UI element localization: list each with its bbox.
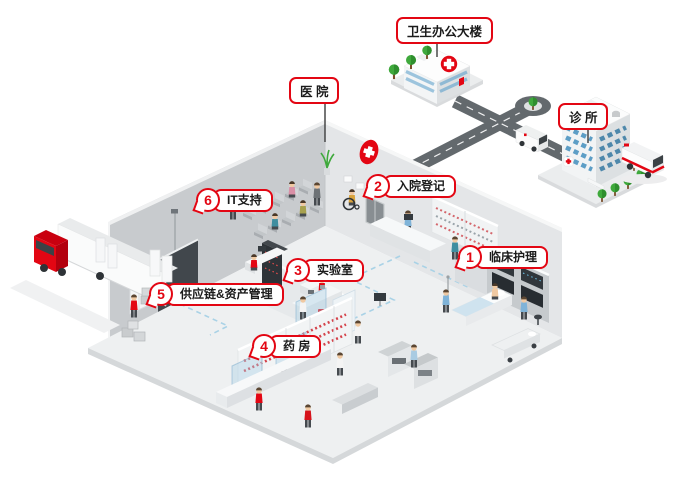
callout-label: 药 房 (269, 335, 321, 358)
hospital-infographic: 医 院 卫生办公大楼 诊 所 1 临床护理 2 入院登记 3 实验室 4 药 房… (0, 0, 700, 498)
callout-label: 实验室 (303, 259, 364, 282)
roof-red-cross-icon (441, 56, 457, 72)
label-hospital: 医 院 (289, 77, 339, 104)
hospital-building (10, 120, 562, 464)
callout-number-badge: 2 (366, 174, 390, 198)
shuttle-van (516, 125, 548, 152)
clinic-red-cross-icon (564, 157, 573, 166)
security-camera-icon (171, 209, 178, 214)
label-health-office: 卫生办公大楼 (396, 17, 493, 44)
callout-number-badge: 1 (458, 245, 482, 269)
callout-number-badge: 4 (252, 334, 276, 358)
callout-clinical-care: 1 临床护理 (458, 245, 548, 269)
isometric-scene (0, 0, 700, 498)
callout-label: 供应链&资产管理 (166, 283, 284, 306)
callout-label: 入院登记 (383, 175, 456, 198)
callout-supply-chain: 5 供应链&资产管理 (149, 282, 284, 306)
callout-admission: 2 入院登记 (366, 174, 456, 198)
health-office-building (389, 46, 483, 107)
callout-number-badge: 3 (286, 258, 310, 282)
callout-label: 临床护理 (475, 246, 548, 269)
roundabout (515, 96, 551, 116)
callout-number-badge: 5 (149, 282, 173, 306)
callout-laboratory: 3 实验室 (286, 258, 364, 282)
callout-number-badge: 6 (196, 188, 220, 212)
ambulance (621, 142, 667, 184)
label-clinic: 诊 所 (558, 103, 608, 130)
dock-apron (10, 280, 120, 333)
callout-pharmacy: 4 药 房 (252, 334, 321, 358)
callout-it-support: 6 IT支持 (196, 188, 273, 212)
callout-label: IT支持 (213, 189, 273, 212)
